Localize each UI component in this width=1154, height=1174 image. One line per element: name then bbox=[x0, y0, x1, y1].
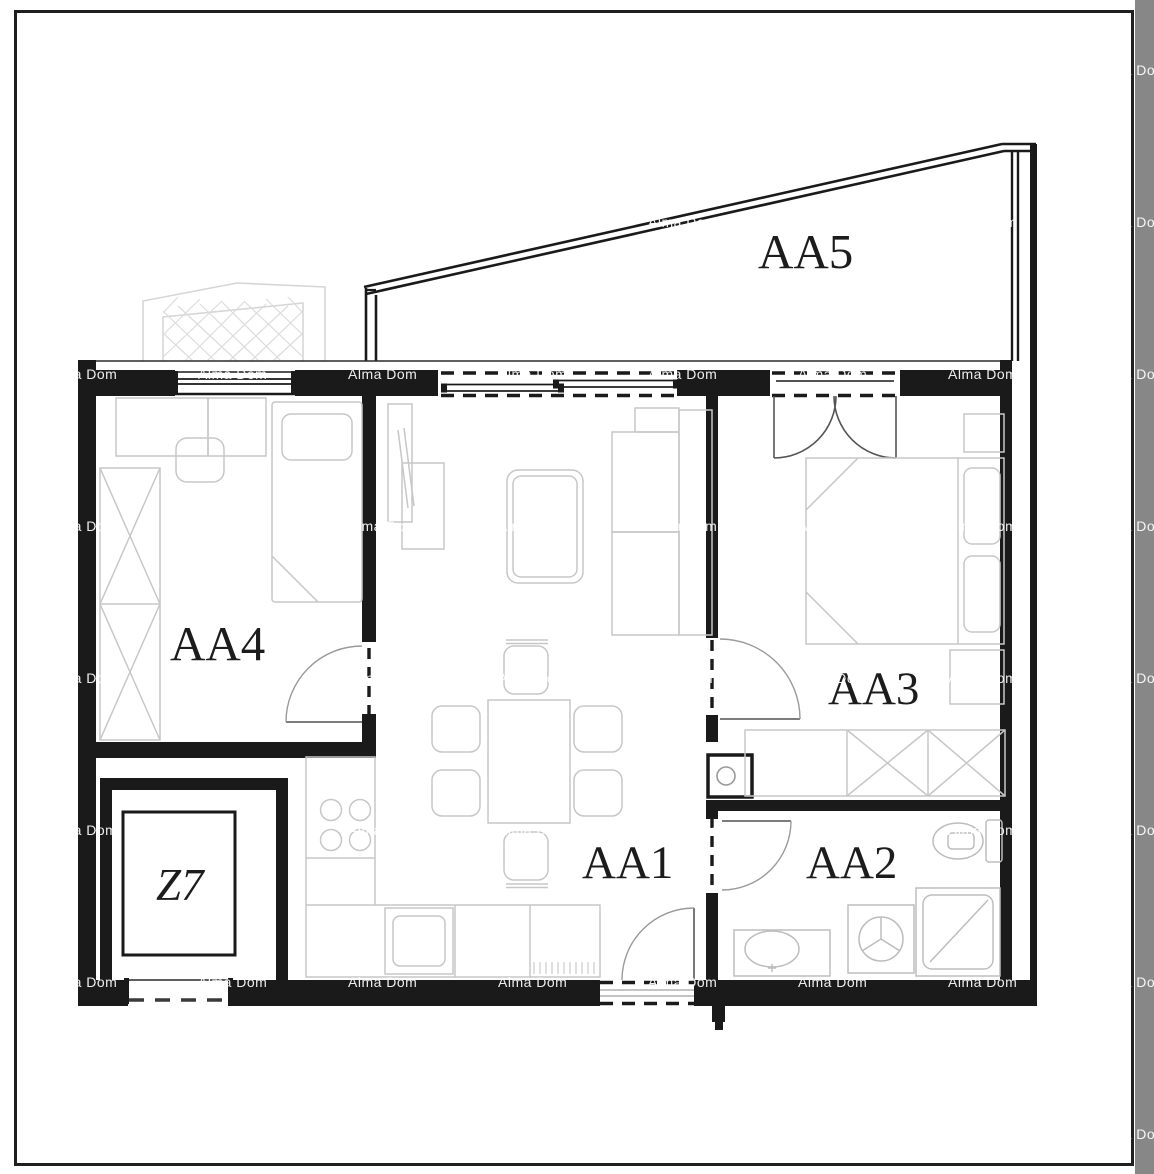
wall-top-b bbox=[295, 370, 438, 396]
wall-bottom-c bbox=[694, 980, 1037, 1006]
room-label-z7: Z7 bbox=[156, 860, 206, 910]
floor-plan-drawing: AA5 AA4 AA1 AA3 AA2 Z7 bbox=[0, 0, 1154, 1174]
wall-aa4-bottom bbox=[96, 742, 376, 758]
room-label-aa5: AA5 bbox=[758, 224, 853, 279]
wall-right-inner bbox=[1000, 360, 1012, 1006]
entry-step-2 bbox=[715, 1022, 723, 1030]
wall-top-pier bbox=[677, 370, 770, 396]
room-label-aa3: AA3 bbox=[828, 663, 919, 715]
room-label-aa2: AA2 bbox=[806, 837, 897, 889]
wall-aa1-aa2 bbox=[706, 893, 718, 1006]
room-label-aa4: AA4 bbox=[170, 616, 265, 671]
entry-step bbox=[712, 1006, 725, 1022]
wall-top-a bbox=[78, 370, 175, 396]
wall-left bbox=[78, 360, 96, 1006]
wall-top-c bbox=[900, 370, 1012, 396]
wall-right-outer bbox=[1030, 144, 1037, 1006]
room-label-aa1: AA1 bbox=[582, 837, 673, 889]
scrollbar-band[interactable] bbox=[1135, 0, 1154, 1174]
floor-plan-page: AA5 AA4 AA1 AA3 AA2 Z7 Alma DomAlma DomA… bbox=[0, 0, 1154, 1174]
wall-aa4-aa1 bbox=[362, 396, 376, 642]
wall-aa3-aa2 bbox=[706, 800, 1000, 811]
